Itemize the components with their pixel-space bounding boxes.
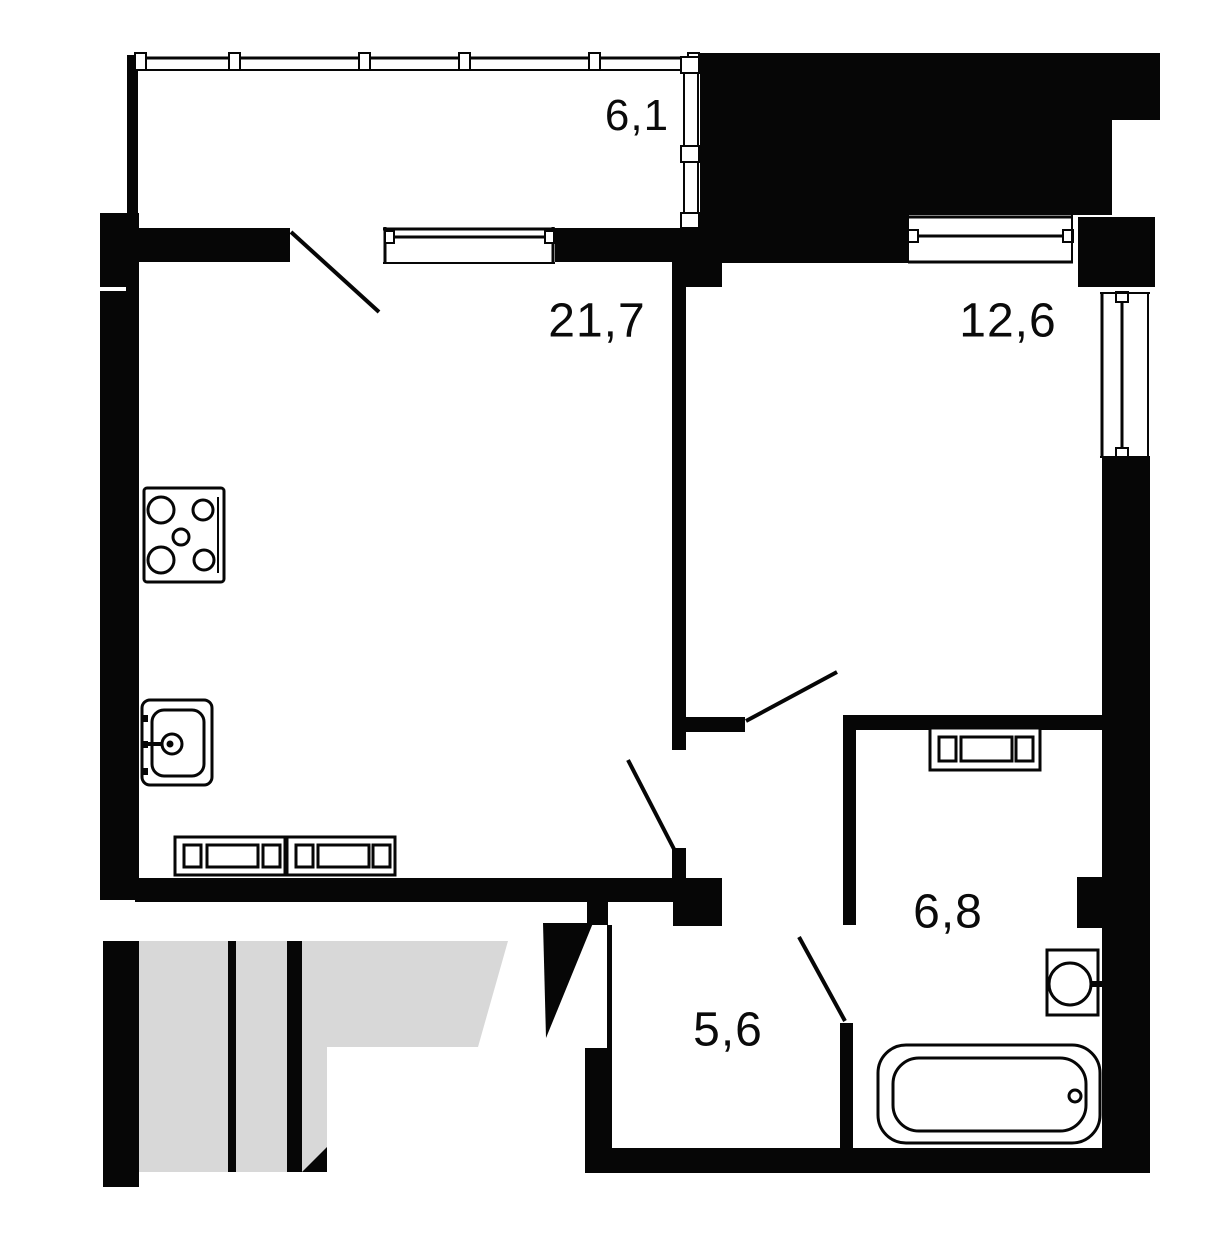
top-right-pillar	[1078, 217, 1155, 287]
stairwell-step-divider-thick	[287, 941, 302, 1172]
living-balcony-window-end	[545, 231, 554, 243]
sink-faucet-dot	[167, 741, 174, 748]
living-door-swing	[628, 760, 675, 851]
plan-svg	[0, 0, 1232, 1250]
balcony-glazing-mullion	[359, 53, 370, 70]
bathroom-vent-block	[1077, 877, 1128, 928]
balcony-glazing-mullion	[589, 53, 600, 70]
living-bottom-wall	[135, 878, 673, 902]
bathroom-left-wall-upper	[843, 730, 856, 925]
bedroom-area-label: 12,6	[959, 294, 1056, 349]
bedroom-door-swing	[746, 672, 837, 721]
living-door-stub	[672, 848, 686, 878]
bathtub-drain	[1069, 1090, 1081, 1102]
balcony-area-label: 6,1	[605, 91, 669, 141]
neighbor-block	[700, 53, 1112, 215]
balcony-door-swing	[291, 232, 379, 312]
bathroom-door-swing	[799, 937, 845, 1021]
balcony-sill-wall-right	[555, 228, 673, 262]
living-kitchen-area-label: 21,7	[548, 294, 645, 349]
balcony-side-glazing-mullion	[681, 213, 699, 228]
balcony-sill-wall-left	[139, 228, 290, 262]
bedroom-top-wall	[700, 215, 908, 263]
neighbor-block-extension	[1112, 53, 1160, 120]
partition-top-block	[672, 228, 722, 287]
kitchen-radiator-body	[175, 837, 285, 875]
living-balcony-window-end	[385, 231, 394, 243]
hall-top-block	[673, 878, 722, 926]
stairwell-step-divider-thin	[228, 941, 236, 1172]
balcony-glazing-mullion	[459, 53, 470, 70]
living-bedroom-partition	[672, 287, 686, 750]
stairwell-left-wall	[103, 941, 139, 1187]
balcony-side-glazing-mullion	[681, 146, 699, 162]
balcony-left-wall	[127, 55, 138, 215]
left-wall	[100, 213, 139, 900]
bathroom-left-wall-lower	[840, 1023, 853, 1148]
bedroom-door-stub	[682, 717, 745, 732]
hallway-area-label: 5,6	[693, 1003, 763, 1058]
hall-left-thin-wall	[607, 925, 612, 1048]
kitchen-radiator-body	[287, 837, 395, 875]
hall-left-wall	[585, 1048, 612, 1148]
balcony-glazing-mullion	[229, 53, 240, 70]
entrance-door-leaf	[543, 923, 593, 1038]
sink-hinge	[143, 768, 148, 775]
stairwell-floor	[139, 941, 508, 1172]
sink-hinge	[143, 715, 148, 722]
balcony-side-glazing-mullion	[681, 57, 699, 73]
bottom-wall	[585, 1148, 1150, 1173]
bedroom-window-end	[908, 230, 918, 242]
floor-plan-canvas: 6,1 21,7 12,6 6,8 5,6	[0, 0, 1232, 1250]
balcony-glazing-mullion	[135, 53, 146, 70]
right-wall	[1102, 458, 1150, 1173]
left-wall-joint-line	[100, 287, 126, 291]
bathroom-area-label: 6,8	[913, 885, 983, 940]
entry-door-jamb	[587, 902, 608, 925]
towel-radiator-body	[930, 728, 1040, 770]
